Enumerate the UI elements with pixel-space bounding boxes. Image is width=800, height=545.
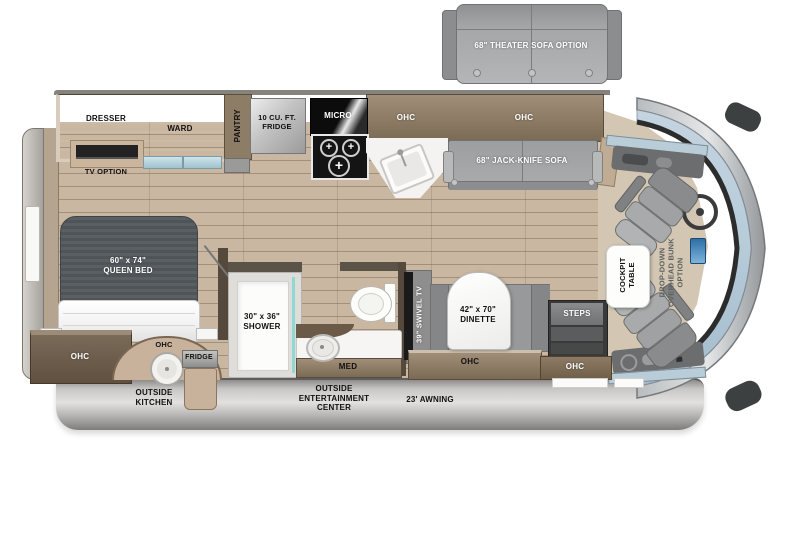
ward-label: WARD xyxy=(150,124,210,134)
theater-sofa-option: 68" THEATER SOFA OPTION xyxy=(442,4,620,84)
burner-icon: + xyxy=(328,155,350,177)
bath-wall-left xyxy=(218,248,228,340)
med-label: MED xyxy=(318,362,378,372)
gauge-icon xyxy=(619,353,638,372)
bedroom-window xyxy=(183,156,222,169)
theater-sofa-label: 68" THEATER SOFA OPTION xyxy=(456,41,606,51)
side-mirror-icon xyxy=(722,377,765,414)
queen-bed xyxy=(60,216,196,340)
cooktop: + + + xyxy=(311,134,369,180)
bedroom-window xyxy=(143,156,183,169)
outside-sink xyxy=(150,352,184,386)
outside-fridge-label: FRIDGE xyxy=(180,354,218,362)
tv-option-screen xyxy=(76,145,138,159)
bath-header xyxy=(340,262,404,271)
bath-header xyxy=(228,262,302,272)
outside-kitchen-label: OUTSIDE KITCHEN xyxy=(116,388,192,407)
side-mirror-icon xyxy=(722,99,764,134)
dresser-label: DRESSER xyxy=(66,114,146,124)
ohc-entry-label: OHC xyxy=(545,362,605,372)
steps-label: STEPS xyxy=(548,309,606,319)
rv-floorplan: 68" THEATER SOFA OPTION OUTSIDE KITCHEN … xyxy=(0,0,800,545)
shower-label: 30" x 36" SHOWER xyxy=(230,312,294,331)
rear-window xyxy=(25,206,40,282)
fridge-10cuft-label: 10 CU. FT. FRIDGE xyxy=(248,113,306,131)
pantry-label: PANTRY xyxy=(233,101,243,151)
jack-knife-sofa-label: 68" JACK-KNIFE SOFA xyxy=(448,156,596,166)
cockpit-table-label: COCKPIT TABLE xyxy=(618,245,636,305)
entry-door xyxy=(552,378,608,388)
burner-icon: + xyxy=(320,139,338,157)
swivel-tv-screen xyxy=(404,272,413,360)
ohc-outside-kitchen-label: OHC xyxy=(134,340,194,349)
entry-door-step xyxy=(614,378,644,388)
outside-entertainment-label: OUTSIDE ENTERTAINMENT CENTER xyxy=(282,384,386,413)
ohc-sofa-label: OHC xyxy=(494,113,554,123)
burner-icon: + xyxy=(342,139,360,157)
toilet-bowl xyxy=(350,286,392,322)
tv-option-label: TV OPTION xyxy=(70,167,142,176)
ohc-kitchen-label: OHC xyxy=(376,113,436,123)
ohc-bed-foot-label: OHC xyxy=(50,352,110,362)
microwave-label: MICRO xyxy=(310,111,366,121)
swivel-tv-label: 39" SWIVEL TV xyxy=(415,270,424,360)
drop-down-bunk-label: DROP-DOWN OVERHEAD BUNK OPTION xyxy=(658,213,685,333)
queen-bed-label: 60" x 74" QUEEN BED xyxy=(60,256,196,275)
vanity-sink xyxy=(306,334,340,362)
ohc-dinette-label: OHC xyxy=(440,357,500,367)
console-monitor xyxy=(690,238,706,264)
dinette-label: 42" x 70" DINETTE xyxy=(446,305,510,324)
pantry-base xyxy=(224,158,250,173)
awning-label: 23' AWNING xyxy=(392,395,468,405)
bed-side-step xyxy=(196,328,218,340)
